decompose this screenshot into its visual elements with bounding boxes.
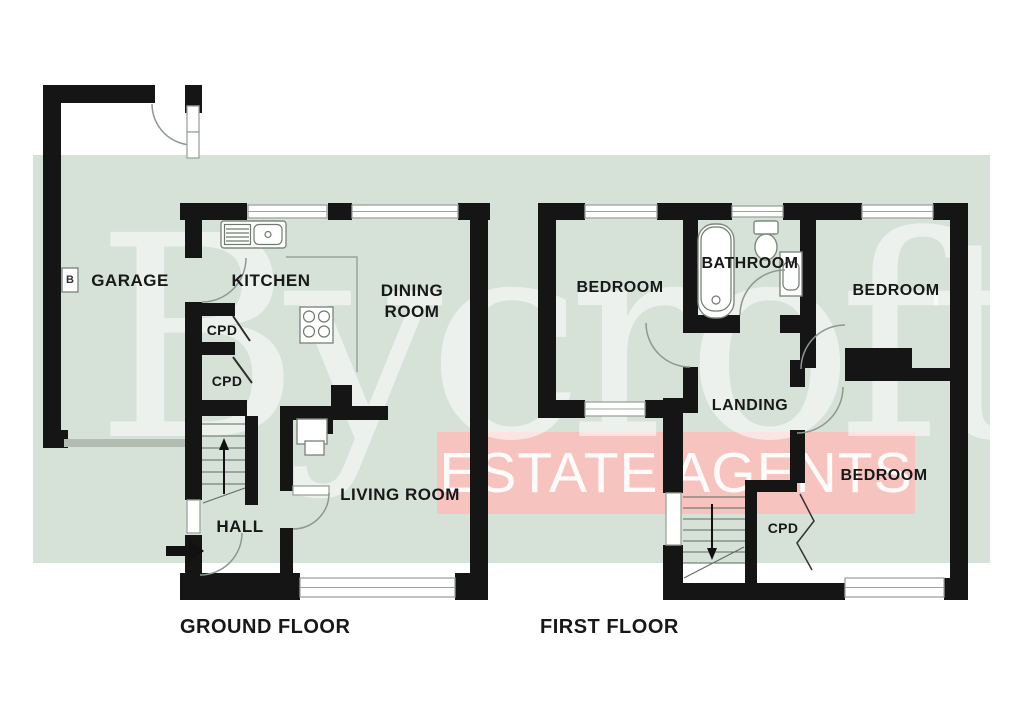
cpd1-top-wall bbox=[185, 303, 235, 316]
gf-bottom-wall-right bbox=[455, 573, 488, 600]
dining-window bbox=[352, 205, 458, 218]
gf-right-wall bbox=[470, 203, 488, 600]
kitchen-dining-stub bbox=[331, 385, 352, 406]
bathroom-label: BATHROOM bbox=[701, 255, 798, 273]
stairwell-left-wall bbox=[663, 398, 683, 493]
garage-walls bbox=[43, 85, 202, 448]
stairs-top-wall bbox=[185, 400, 247, 416]
garage-top-wall bbox=[43, 85, 155, 103]
hob bbox=[300, 307, 333, 343]
ground-floor-walls bbox=[180, 203, 490, 600]
stairs-right-wall bbox=[245, 416, 258, 505]
boiler-label: B bbox=[66, 274, 74, 286]
bedroom2-bottom-chunk bbox=[845, 348, 912, 381]
gf-top-pier bbox=[328, 203, 352, 220]
ff-bottom-corner-right bbox=[944, 578, 968, 600]
kitchen-sink bbox=[221, 221, 286, 248]
ff-bottom-wall bbox=[663, 583, 845, 600]
bedroom1-bottom-wall-a bbox=[538, 400, 585, 418]
ground-floor-plan bbox=[43, 85, 490, 600]
ff-top-pier1 bbox=[657, 203, 732, 220]
fireplace bbox=[297, 419, 327, 455]
bedroom1-bathroom-divider-b bbox=[683, 367, 698, 413]
side-door bbox=[187, 106, 199, 158]
bathroom-window bbox=[732, 206, 783, 217]
bedroom2-window bbox=[862, 205, 933, 218]
living-divider-wall bbox=[280, 406, 388, 420]
kitchen-label: KITCHEN bbox=[231, 271, 310, 291]
bedroom1-bathroom-divider-a bbox=[683, 220, 698, 323]
bedroom1-window bbox=[585, 205, 657, 218]
bedroom3-left-wall bbox=[790, 430, 805, 483]
dining-room-label: DINING ROOM bbox=[354, 280, 470, 323]
hall-living-wall-lower bbox=[280, 528, 293, 600]
cpd3-bifold-door bbox=[797, 494, 814, 570]
living-room-door bbox=[293, 486, 329, 529]
bedroom2-bottom-wall-right bbox=[912, 368, 950, 381]
garage-left-wall bbox=[43, 85, 61, 448]
stairs-up bbox=[202, 424, 245, 503]
bedroom2-label: BEDROOM bbox=[852, 282, 939, 300]
ground-floor-label: GROUND FLOOR bbox=[180, 616, 350, 639]
bedroom3-window bbox=[845, 578, 944, 597]
living-room-window bbox=[300, 578, 455, 597]
bedroom1-rear-window bbox=[585, 402, 645, 416]
ground-floor-windows bbox=[248, 205, 458, 597]
cpd1-label: CPD bbox=[207, 322, 237, 338]
hall-living-wall-upper bbox=[280, 406, 293, 491]
bathroom-door-arc bbox=[740, 270, 785, 315]
stairs-up-arrow-head bbox=[219, 438, 229, 450]
hall-label: HALL bbox=[216, 517, 263, 537]
kitchen-window bbox=[248, 205, 327, 218]
bedroom3-left-stub bbox=[790, 360, 805, 387]
cpd2-label: CPD bbox=[212, 373, 242, 389]
living-room-label: LIVING ROOM bbox=[340, 485, 460, 505]
bedroom3-label: BEDROOM bbox=[840, 467, 927, 485]
bedroom1-label: BEDROOM bbox=[576, 279, 663, 297]
landing-label: LANDING bbox=[712, 397, 788, 415]
floor-plan-drawing bbox=[0, 0, 1024, 724]
ff-right-wall bbox=[950, 203, 968, 600]
floorplan-page: ESTATE AGENTS Bycroft bbox=[0, 0, 1024, 724]
garage-door bbox=[64, 439, 186, 447]
bedroom3-door-arc bbox=[797, 387, 843, 433]
gf-left-wall-a bbox=[185, 203, 202, 258]
ff-left-wall bbox=[538, 203, 556, 418]
first-floor-label: FIRST FLOOR bbox=[540, 616, 679, 639]
stairs-down bbox=[683, 497, 745, 578]
stairs-cpd-divider bbox=[745, 480, 757, 583]
ff-top-pier2 bbox=[783, 203, 862, 220]
stair-banister bbox=[666, 493, 681, 545]
stairs-down-arrow-head bbox=[707, 548, 717, 560]
garage-label: GARAGE bbox=[91, 271, 169, 291]
cpd3-label: CPD bbox=[768, 520, 798, 536]
cpd1-bottom-wall bbox=[185, 342, 235, 355]
